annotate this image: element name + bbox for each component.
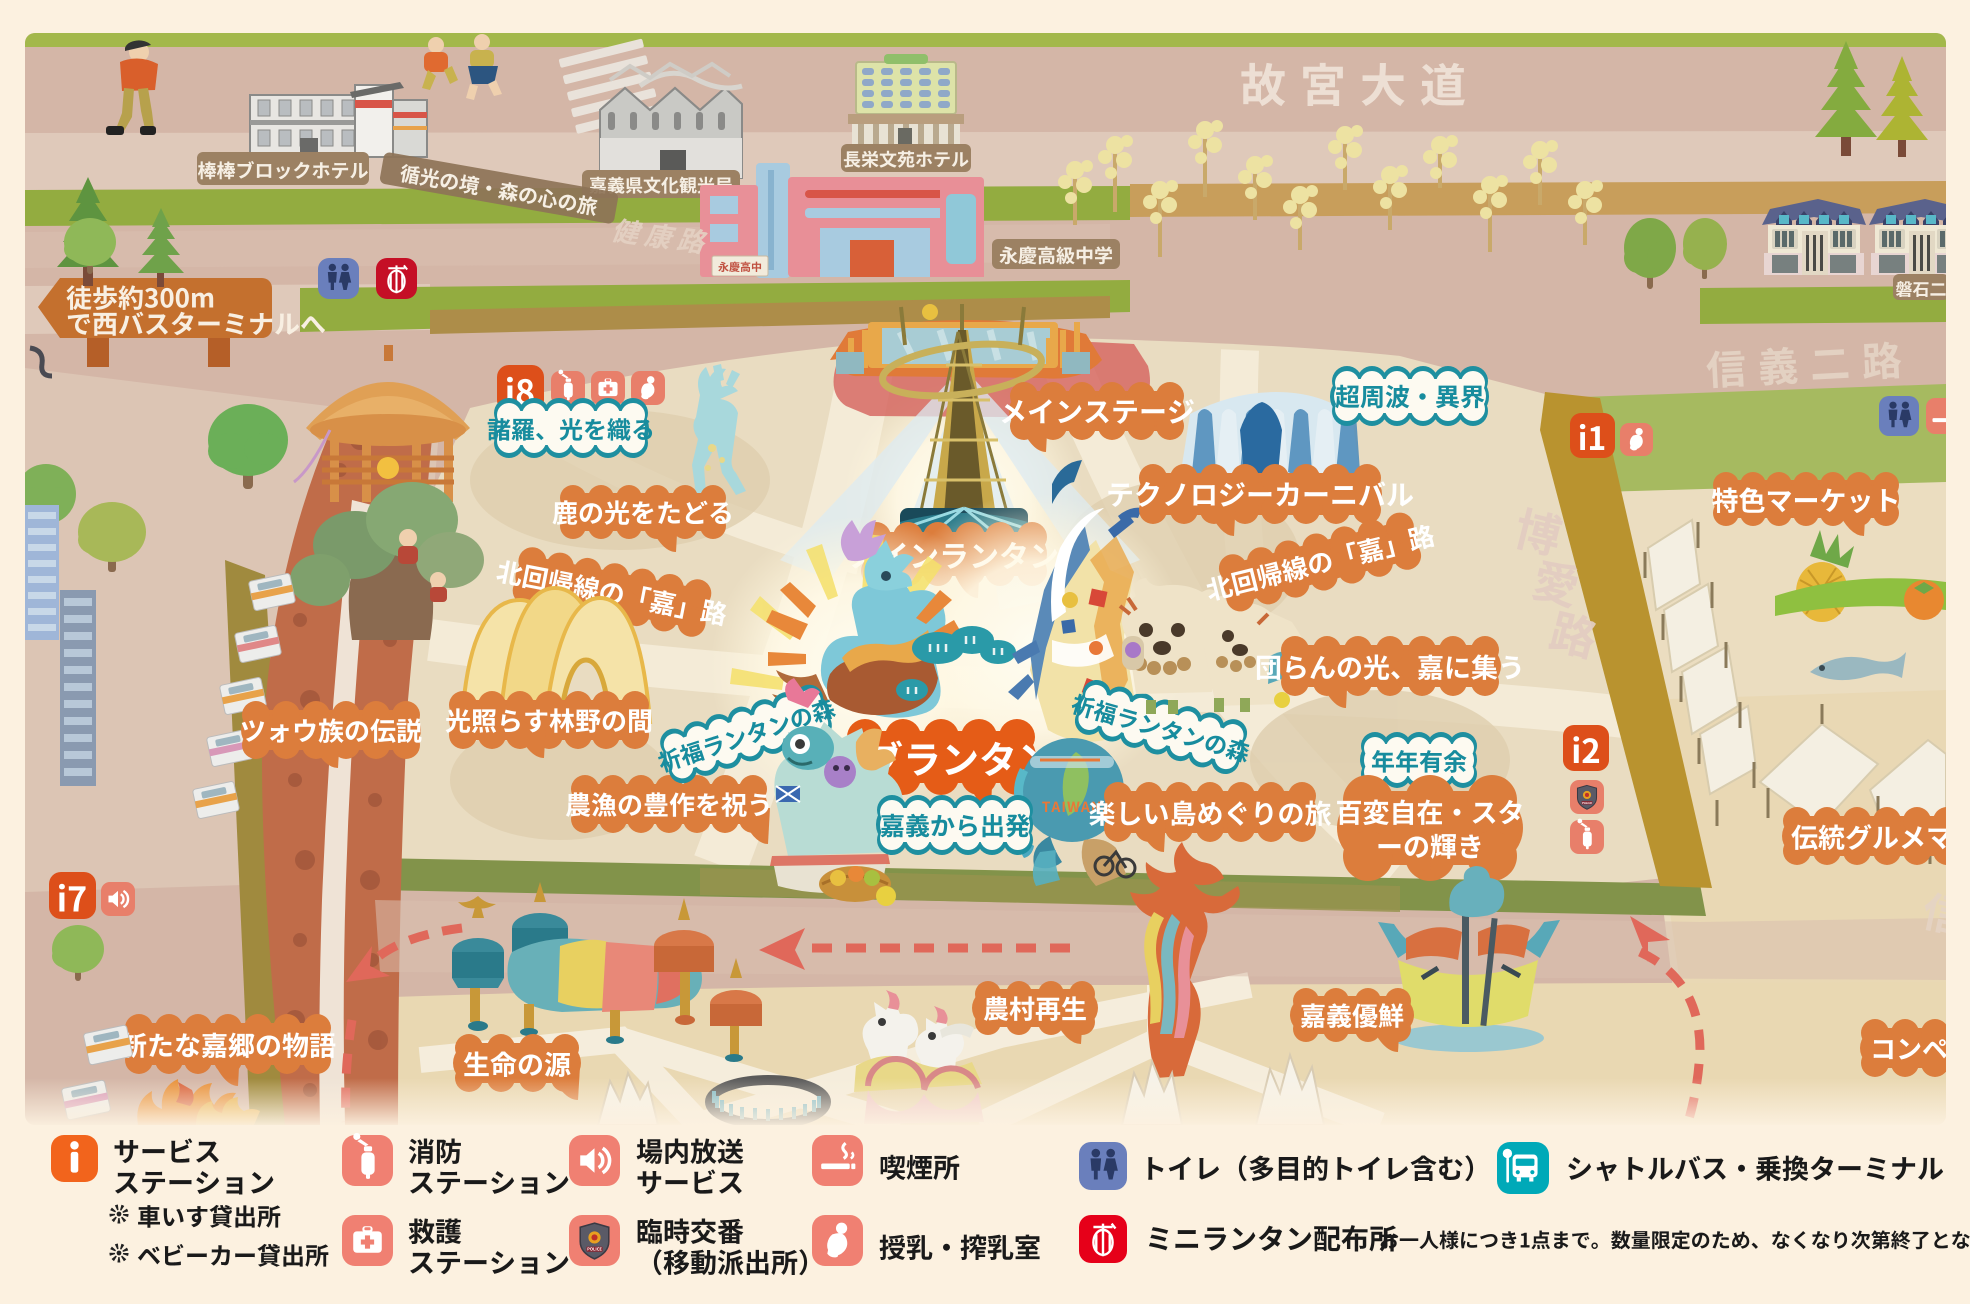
svg-text:お一人様につき1点まで。数量限定のため、なくなり次第終了とな: お一人様につき1点まで。数量限定のため、なくなり次第終了となります。 xyxy=(1379,1225,1970,1254)
svg-text:信義二路: 信義二路 xyxy=(1704,328,1915,397)
svg-text:POLICE: POLICE xyxy=(587,1247,602,1253)
svg-text:POLICE: POLICE xyxy=(1582,801,1592,805)
svg-text:永慶高級中学: 永慶高級中学 xyxy=(999,242,1113,269)
svg-text:車いす貸出所: 車いす貸出所 xyxy=(137,1198,281,1233)
svg-text:授乳・搾乳室: 授乳・搾乳室 xyxy=(879,1227,1041,1266)
svg-text:i1: i1 xyxy=(1578,414,1607,460)
svg-text:楽しい島めぐりの旅: 楽しい島めぐりの旅 xyxy=(1089,793,1332,832)
svg-text:生命の源: 生命の源 xyxy=(463,1044,571,1083)
svg-text:喫煙所: 喫煙所 xyxy=(879,1147,960,1186)
svg-text:ツォウ族の伝説: ツォウ族の伝説 xyxy=(240,712,422,749)
svg-text:超周波・異界: 超周波・異界 xyxy=(1335,378,1485,414)
svg-text:年年有余: 年年有余 xyxy=(1371,743,1467,778)
svg-text:団らんの光、嘉に集う: 団らんの光、嘉に集う xyxy=(1255,647,1525,686)
svg-text:i7: i7 xyxy=(57,873,87,922)
svg-text:新たな嘉郷の物語: 新たな嘉郷の物語 xyxy=(120,1025,336,1064)
svg-text:伝統グルメマ: 伝統グルメマ xyxy=(1791,817,1953,856)
svg-text:長栄文苑ホテル: 長栄文苑ホテル xyxy=(843,146,969,172)
svg-text:農漁の豊作を祝う: 農漁の豊作を祝う xyxy=(565,786,773,823)
svg-text:磐石二: 磐石二 xyxy=(1896,276,1947,301)
svg-text:農村再生: 農村再生 xyxy=(983,990,1087,1027)
svg-text:ステーション: ステーション xyxy=(113,1162,275,1201)
svg-text:サービス: サービス xyxy=(636,1162,744,1201)
svg-text:嘉義優鮮: 嘉義優鮮 xyxy=(1300,997,1404,1034)
svg-text:永慶高中: 永慶高中 xyxy=(718,259,762,275)
svg-text:諸羅、光を織る: 諸羅、光を織る xyxy=(487,411,655,446)
svg-text:テクノロジーカーニバル: テクノロジーカーニバル xyxy=(1106,474,1414,514)
svg-text:ーの輝き: ーの輝き xyxy=(1376,826,1484,865)
svg-text:シャトルバス・乗換ターミナル: シャトルバス・乗換ターミナル xyxy=(1566,1148,1944,1187)
svg-text:i2: i2 xyxy=(1571,725,1601,773)
svg-text:ベビーカー貸出所: ベビーカー貸出所 xyxy=(137,1237,329,1272)
svg-text:故宮大道: 故宮大道 xyxy=(1240,50,1480,116)
svg-text:ステーション: ステーション xyxy=(408,1162,570,1201)
svg-text:で西バスターミナルへ: で西バスターミナルへ xyxy=(66,305,326,342)
svg-text:（移動派出所）: （移動派出所） xyxy=(636,1242,825,1281)
svg-text:鹿の光をたどる: 鹿の光をたどる xyxy=(552,494,734,531)
svg-text:トイレ（多目的トイレ含む）: トイレ（多目的トイレ含む） xyxy=(1140,1148,1491,1187)
svg-text:特色マーケット: 特色マーケット xyxy=(1712,480,1901,519)
svg-text:ステーション: ステーション xyxy=(408,1242,570,1281)
svg-text:メインステージ: メインステージ xyxy=(999,391,1195,431)
svg-text:ミニランタン配布所: ミニランタン配布所 xyxy=(1145,1218,1397,1258)
svg-text:光照らす林野の間: 光照らす林野の間 xyxy=(445,702,653,739)
svg-text:棒棒ブロックホテル: 棒棒ブロックホテル xyxy=(197,157,368,184)
svg-text:嘉義から出発: 嘉義から出発 xyxy=(880,807,1030,843)
